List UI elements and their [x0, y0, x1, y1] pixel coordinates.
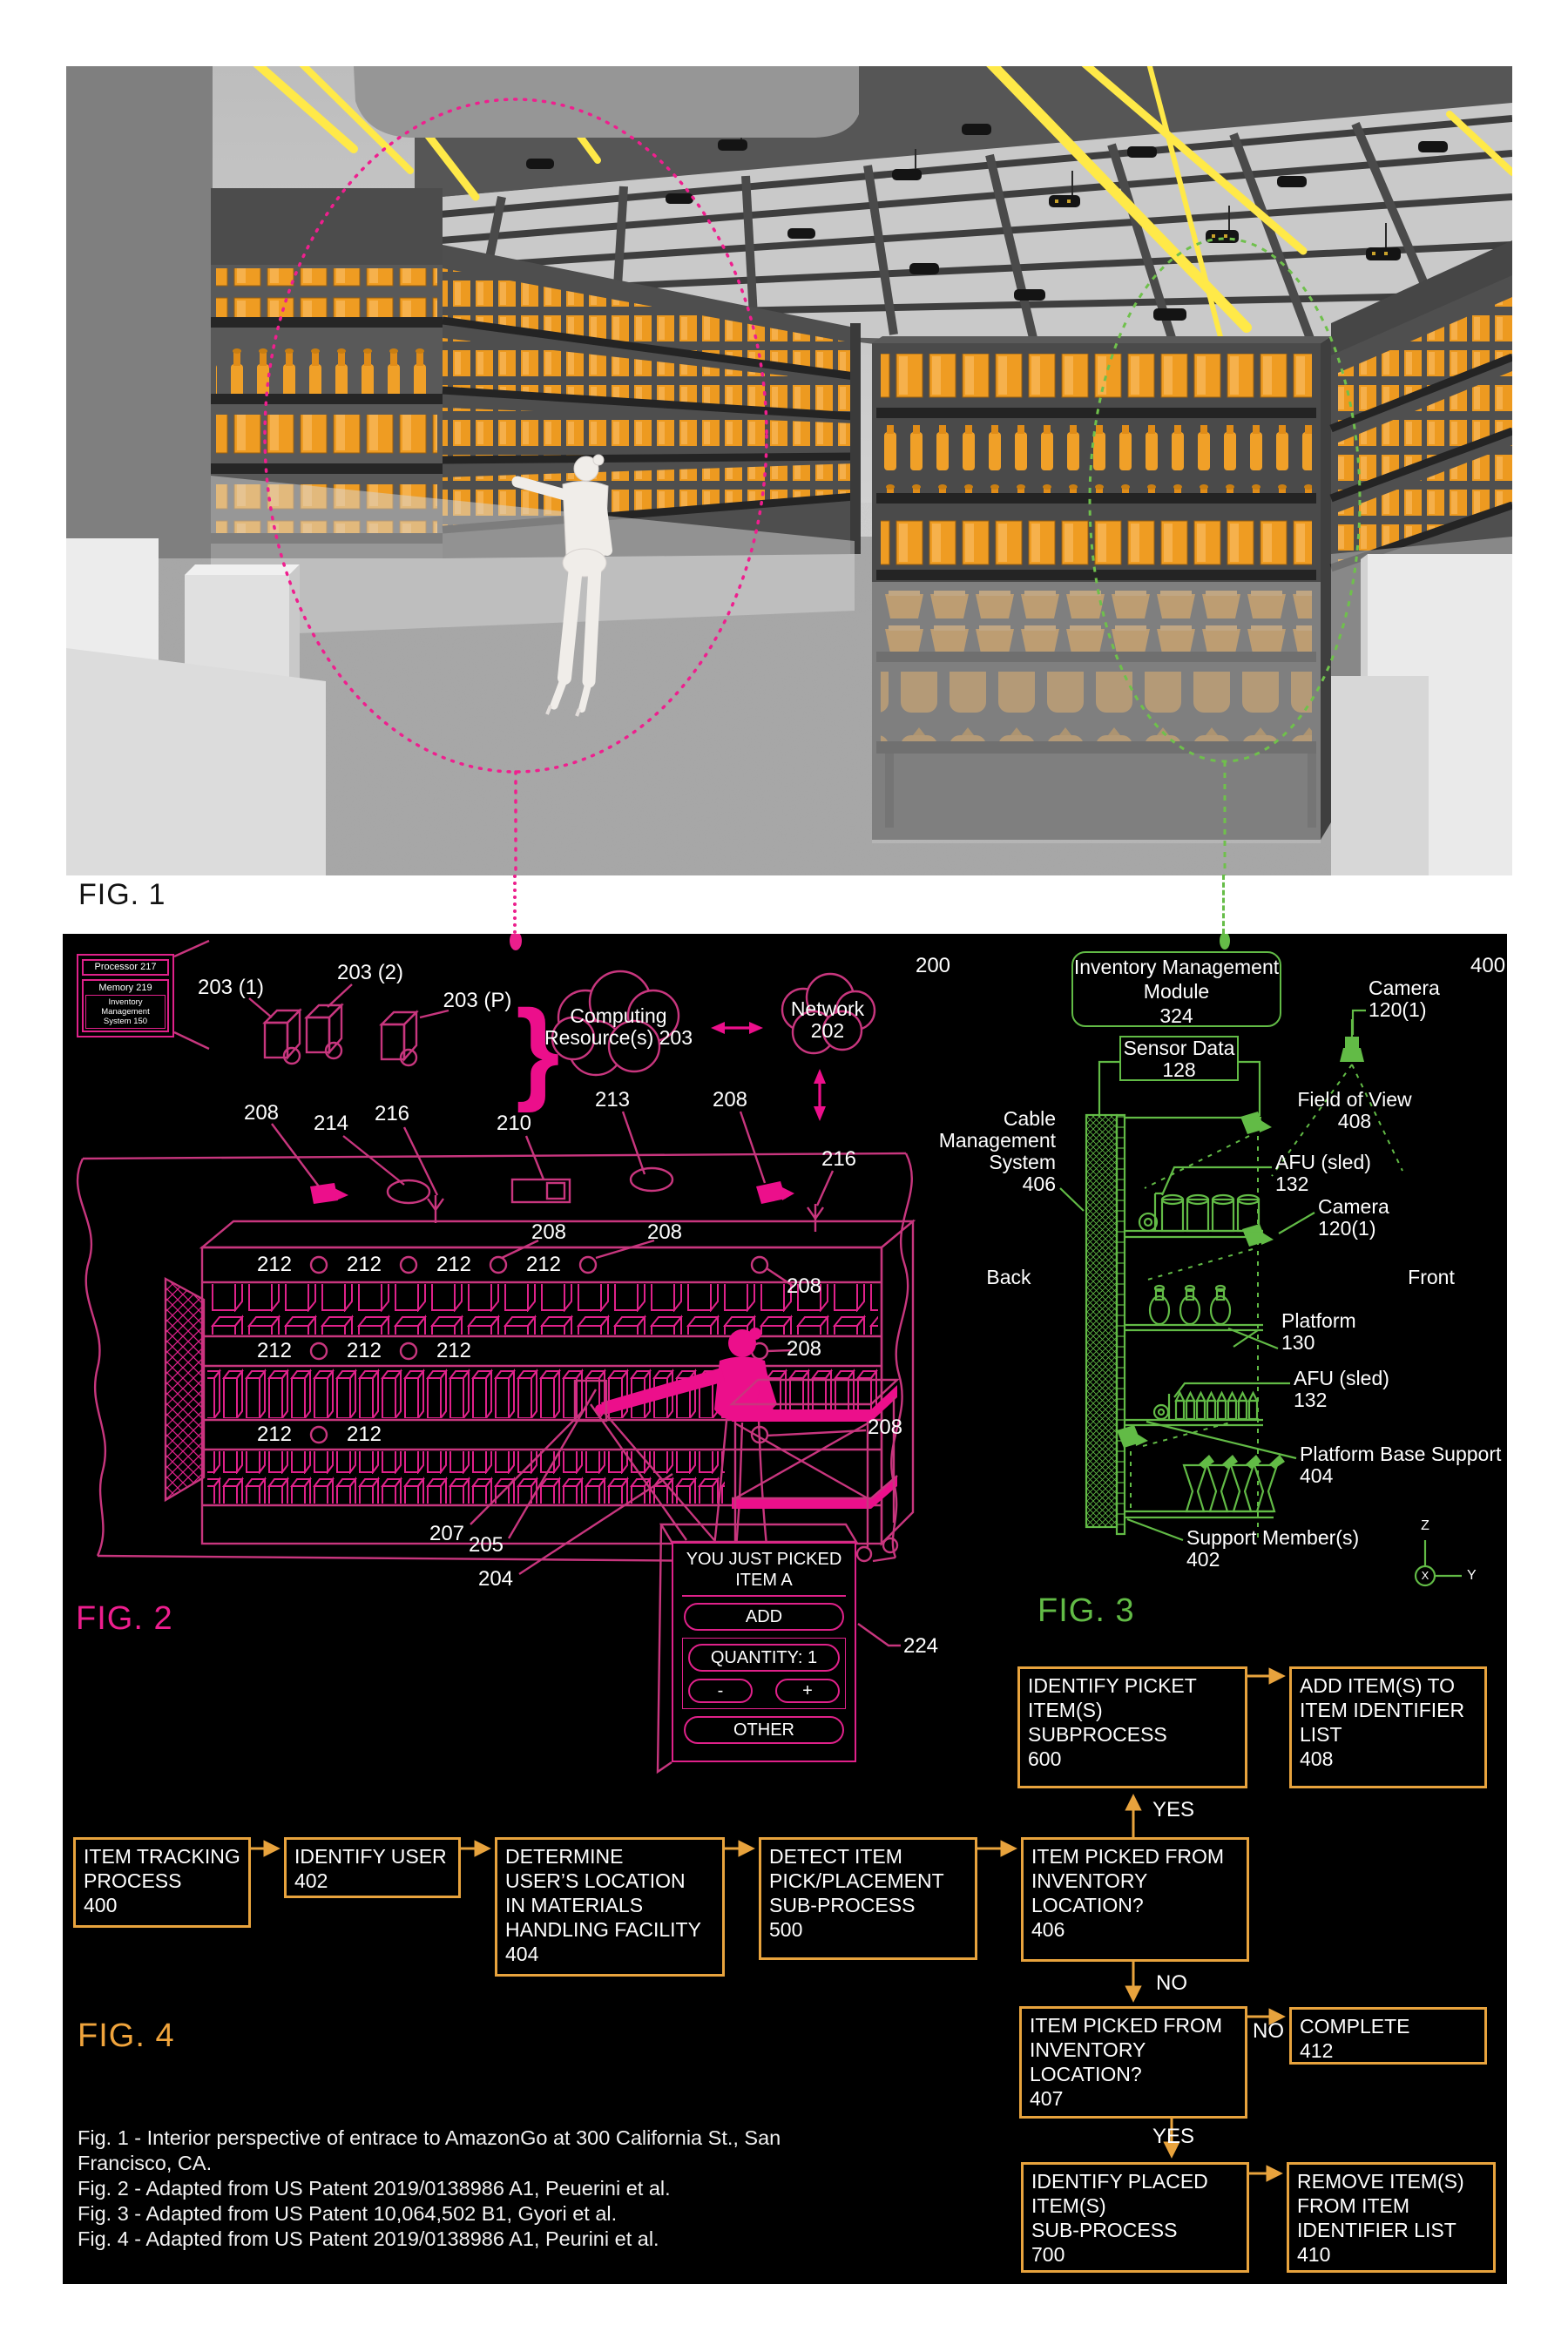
ref-203-2: 203 (2) — [337, 962, 403, 984]
platform-bottles — [1150, 1286, 1230, 1324]
ref-205: 205 — [469, 1534, 504, 1557]
axis-y-label: Y — [1467, 1569, 1477, 1583]
flow-box-item-picked-406: ITEM PICKED FROM INVENTORY LOCATION? 406 — [1021, 1837, 1249, 1962]
fig1-label: FIG. 1 — [78, 878, 166, 912]
processor-memory-box: Processor 217 Memory 219 Inventory Manag… — [77, 954, 174, 1037]
caption-line-5: Fig. 4 - Adapted from US Patent 2019/013… — [78, 2227, 659, 2252]
camera-label-shelf: Camera 120(1) — [1318, 1196, 1389, 1240]
afu-sled-label-1: AFU (sled) 132 — [1275, 1152, 1371, 1195]
fig1-to-fig3-connector — [1222, 875, 1225, 934]
ceiling-light-icon — [631, 1168, 672, 1191]
ref-208: 208 — [531, 1221, 566, 1244]
fig4-label: FIG. 4 — [78, 2017, 175, 2055]
quantity-display: QUANTITY: 1 — [688, 1644, 840, 1672]
afu-sled-label-2: AFU (sled) 132 — [1294, 1368, 1389, 1411]
ref-204: 204 — [478, 1568, 513, 1591]
ref-214: 214 — [314, 1112, 348, 1135]
afu-sled-cylinders — [1139, 1193, 1259, 1231]
flow-box-add-items-408: ADD ITEM(S) TO ITEM IDENTIFIER LIST 408 — [1289, 1666, 1487, 1788]
patent-figure-sheet: FIG. 1 — [0, 0, 1568, 2352]
flow-box-item-tracking-400: ITEM TRACKING PROCESS 400 — [73, 1837, 251, 1928]
flow-box-identify-user-402: IDENTIFY USER 402 — [284, 1837, 461, 1898]
ref-216: 216 — [821, 1148, 856, 1171]
afu-sled-bottles — [1154, 1393, 1257, 1420]
ref-212: 212 — [257, 1254, 292, 1276]
fig2-person — [595, 1328, 781, 1556]
quantity-increase-button[interactable]: + — [775, 1679, 840, 1703]
inventory-management-system-label: Inventory Management System 150 — [85, 995, 166, 1029]
caption-line-4: Fig. 3 - Adapted from US Patent 10,064,5… — [78, 2201, 617, 2227]
axis-z-label: Z — [1421, 1519, 1429, 1533]
axis-x-label: X — [1422, 1569, 1429, 1582]
back-label: Back — [986, 1267, 1031, 1288]
caption-line-3: Fig. 2 - Adapted from US Patent 2019/013… — [78, 2176, 671, 2201]
store-interior-render — [66, 66, 1512, 875]
ref-203-1: 203 (1) — [198, 977, 264, 999]
soffit — [354, 66, 859, 138]
platform-base-support-label: Platform Base Support 404 — [1300, 1443, 1501, 1487]
camera-icon — [310, 1183, 348, 1204]
camera-housing-icon — [512, 1179, 570, 1202]
flow-box-detect-pick-500: DETECT ITEM PICK/PLACEMENT SUB-PROCESS 5… — [759, 1837, 977, 1960]
diagram-panel: } — [63, 934, 1507, 2284]
cable-management-label: Cable Management System 406 — [939, 1108, 1056, 1195]
ref-212: 212 — [257, 1423, 292, 1446]
no-label: NO — [1156, 1972, 1187, 1995]
processor-label: Processor 217 — [82, 959, 169, 976]
ref-213: 213 — [595, 1089, 630, 1112]
ref-208: 208 — [647, 1221, 682, 1244]
ref-200: 200 — [916, 955, 950, 977]
ref-207: 207 — [429, 1523, 464, 1545]
ref-212: 212 — [436, 1254, 471, 1276]
fig3-label: FIG. 3 — [1037, 1592, 1135, 1630]
ref-208: 208 — [868, 1416, 902, 1439]
ref-212: 212 — [436, 1340, 471, 1362]
popup-divider — [682, 1595, 846, 1597]
flow-box-identify-placed-700: IDENTIFY PLACED ITEM(S) SUB-PROCESS 700 — [1021, 2162, 1249, 2273]
ref-208: 208 — [787, 1338, 821, 1361]
computing-cloud-label: Computing Resource(s) 203 — [544, 1005, 693, 1049]
ref-208: 208 — [713, 1089, 747, 1112]
ref-212: 212 — [347, 1423, 382, 1446]
flow-box-complete-412: COMPLETE 412 — [1289, 2007, 1487, 2065]
add-button[interactable]: ADD — [684, 1603, 844, 1631]
support-members-label: Support Member(s) 402 — [1186, 1527, 1359, 1571]
other-button[interactable]: OTHER — [684, 1716, 844, 1744]
front-label: Front — [1408, 1267, 1455, 1288]
antenna-icon — [808, 1204, 823, 1232]
ref-212: 212 — [257, 1340, 292, 1362]
center-gondola — [872, 336, 1331, 843]
yes-label: YES — [1152, 2126, 1194, 2148]
ceiling-light-icon — [388, 1180, 429, 1203]
caption-line-1: Fig. 1 - Interior perspective of entrace… — [78, 2126, 781, 2151]
inventory-management-module-box: Inventory Management Module 324 — [1071, 951, 1281, 1027]
sensor-data-box: Sensor Data 128 — [1119, 1036, 1239, 1081]
no-label: NO — [1253, 2020, 1284, 2043]
flow-box-determine-location-404: DETERMINE USER’S LOCATION IN MATERIALS H… — [495, 1837, 725, 1977]
ref-210: 210 — [497, 1112, 531, 1135]
ref-216: 216 — [375, 1103, 409, 1125]
item-picked-popup: YOU JUST PICKED ITEM A ADD QUANTITY: 1 -… — [672, 1542, 856, 1762]
quantity-decrease-button[interactable]: - — [688, 1679, 753, 1703]
ref-224: 224 — [903, 1635, 938, 1658]
caption-line-2: Francisco, CA. — [78, 2151, 212, 2176]
ref-212: 212 — [347, 1340, 382, 1362]
yes-label: YES — [1152, 1799, 1194, 1821]
antenna-icon — [428, 1195, 443, 1223]
ref-400: 400 — [1470, 955, 1505, 977]
ref-208: 208 — [787, 1275, 821, 1298]
platform-base-supports — [1184, 1455, 1285, 1511]
flow-box-item-picked-407: ITEM PICKED FROM INVENTORY LOCATION? 407 — [1019, 2006, 1247, 2119]
camera-label-top: Camera 120(1) — [1369, 977, 1440, 1021]
popup-title: YOU JUST PICKED ITEM A — [682, 1549, 846, 1591]
field-of-view-label: Field of View 408 — [1297, 1089, 1411, 1132]
platform-label: Platform 130 — [1281, 1310, 1356, 1354]
ref-212: 212 — [526, 1254, 561, 1276]
ref-208: 208 — [244, 1102, 279, 1125]
ref-203-p: 203 (P) — [443, 990, 512, 1012]
quantity-group: QUANTITY: 1 - + — [682, 1638, 846, 1709]
flow-box-identify-picket-600: IDENTIFY PICKET ITEM(S) SUBPROCESS 600 — [1017, 1666, 1247, 1788]
camera-icon — [756, 1181, 794, 1204]
flow-box-remove-items-410: REMOVE ITEM(S) FROM ITEM IDENTIFIER LIST… — [1287, 2162, 1496, 2273]
fig2-label: FIG. 2 — [76, 1600, 173, 1638]
fig1-to-fig2-connector — [513, 875, 517, 934]
memory-label: Memory 219 Inventory Management System 1… — [82, 979, 169, 1032]
network-cloud-label: Network 202 — [791, 998, 864, 1042]
ref-212: 212 — [347, 1254, 382, 1276]
